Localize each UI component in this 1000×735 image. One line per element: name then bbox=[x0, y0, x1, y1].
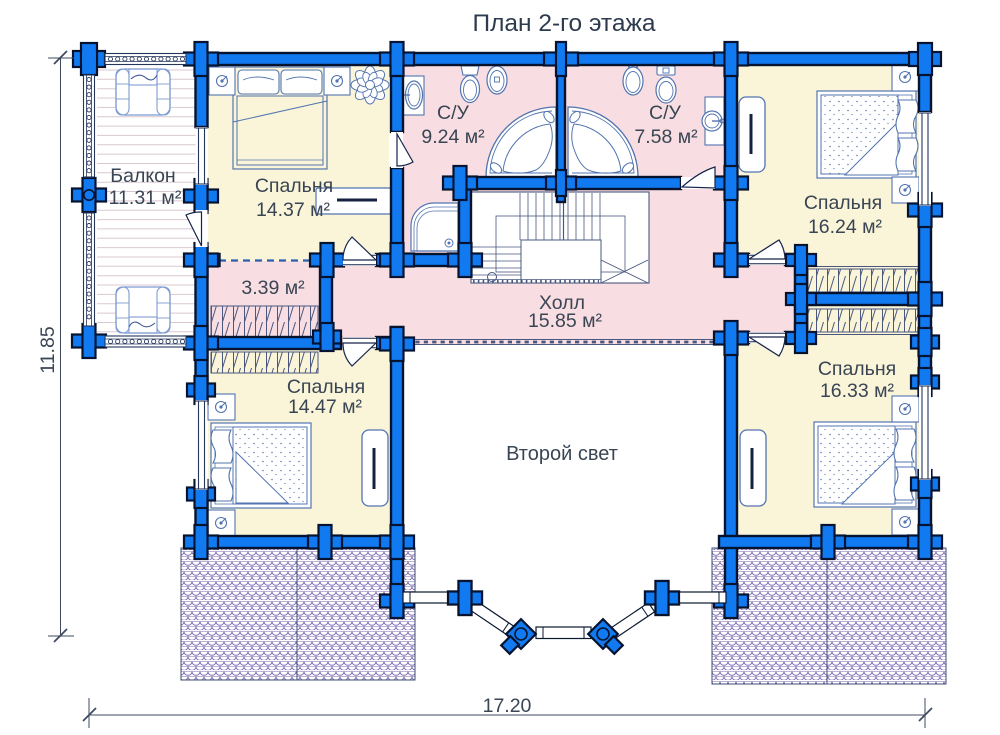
svg-text:9.24 м²: 9.24 м² bbox=[421, 126, 485, 148]
svg-text:11.31 м²: 11.31 м² bbox=[109, 187, 182, 209]
svg-text:Балкон: Балкон bbox=[110, 165, 175, 187]
svg-text:3.39 м²: 3.39 м² bbox=[241, 277, 305, 299]
svg-text:14.47 м²: 14.47 м² bbox=[288, 396, 363, 418]
svg-text:11.85: 11.85 bbox=[37, 326, 59, 374]
svg-text:С/У: С/У bbox=[649, 102, 682, 124]
svg-text:План 2-го этажа: План 2-го этажа bbox=[472, 10, 655, 37]
svg-text:С/У: С/У bbox=[437, 102, 470, 124]
svg-text:17.20: 17.20 bbox=[483, 695, 532, 717]
svg-text:Спальня: Спальня bbox=[255, 175, 333, 197]
svg-text:Спальня: Спальня bbox=[818, 358, 896, 380]
svg-text:Второй свет: Второй свет bbox=[506, 443, 618, 465]
svg-text:7.58 м²: 7.58 м² bbox=[634, 126, 698, 148]
svg-text:15.85 м²: 15.85 м² bbox=[528, 310, 603, 332]
svg-text:14.37 м²: 14.37 м² bbox=[256, 199, 331, 221]
svg-text:16.33 м²: 16.33 м² bbox=[820, 380, 895, 402]
svg-text:Спальня: Спальня bbox=[287, 376, 365, 398]
svg-text:16.24 м²: 16.24 м² bbox=[808, 216, 883, 238]
svg-text:Спальня: Спальня bbox=[804, 192, 882, 214]
